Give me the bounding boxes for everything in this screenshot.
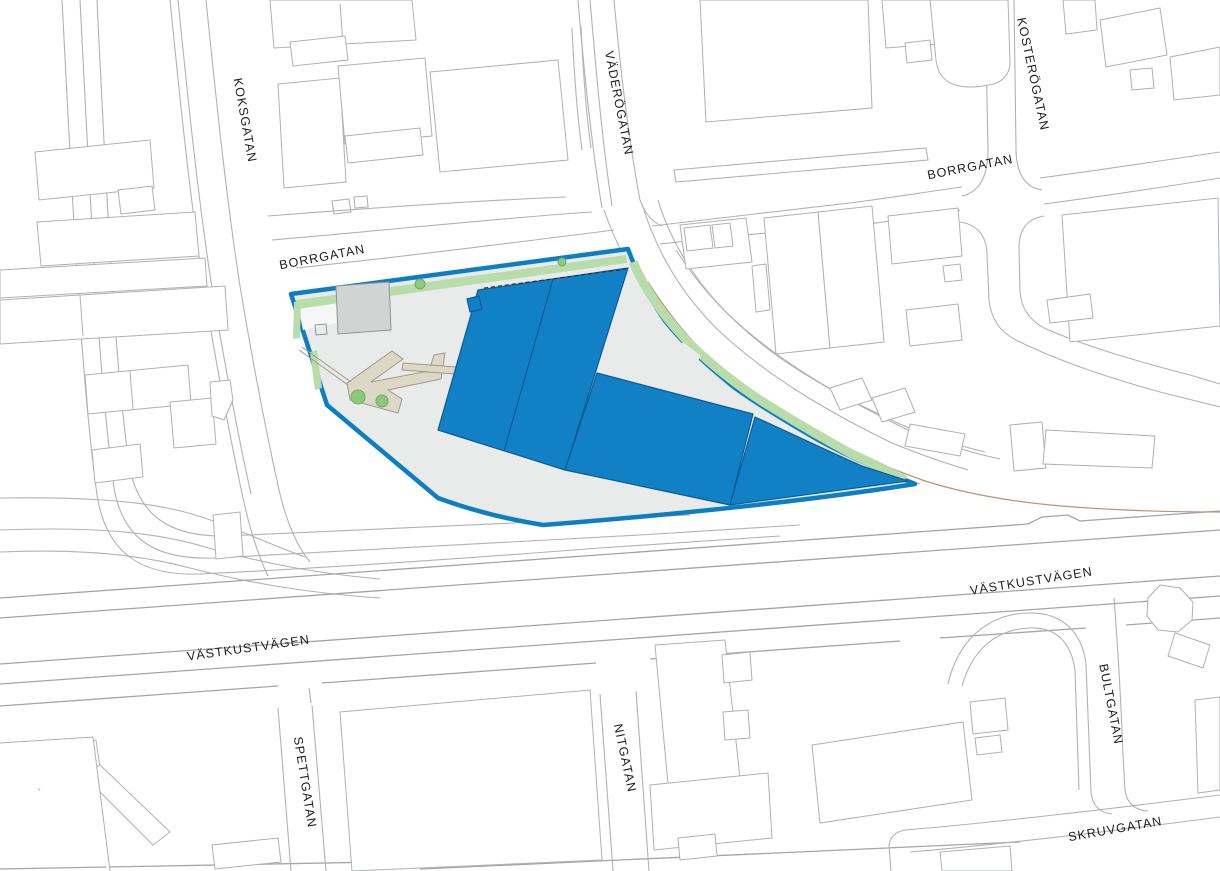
street-label-borrgatan-west: BORRGATAN bbox=[278, 242, 366, 272]
map-canvas: KOKSGATAN BORRGATAN VÄDERÖGATAN KOSTERÖG… bbox=[0, 0, 1220, 871]
street-label-borrgatan-east: BORRGATAN bbox=[926, 152, 1014, 182]
street-label-nitgatan: NITGATAN bbox=[611, 722, 639, 794]
street-label-koksgatan: KOKSGATAN bbox=[231, 77, 260, 164]
building-east-block bbox=[730, 417, 908, 505]
street-label-vastkustvagen-west: VÄSTKUSTVÄGEN bbox=[186, 632, 311, 663]
road-skruvgatan bbox=[889, 795, 1220, 871]
street-label-skruvgatan: SKRUVGATAN bbox=[1067, 814, 1163, 844]
street-label-vaderogatan: VÄDERÖGATAN bbox=[602, 50, 636, 157]
street-label-vastkustvagen-east: VÄSTKUSTVÄGEN bbox=[969, 564, 1094, 597]
street-label-spettgatan: SPETTGATAN bbox=[291, 736, 319, 830]
green-strip-west-1 bbox=[293, 301, 301, 339]
street-label-kosterogatan: KOSTERÖGATAN bbox=[1014, 16, 1052, 132]
building-north-notch bbox=[467, 296, 482, 312]
site-plan-map: KOKSGATAN BORRGATAN VÄDERÖGATAN KOSTERÖG… bbox=[0, 0, 1220, 871]
road-vastkustvagen bbox=[0, 511, 1220, 869]
